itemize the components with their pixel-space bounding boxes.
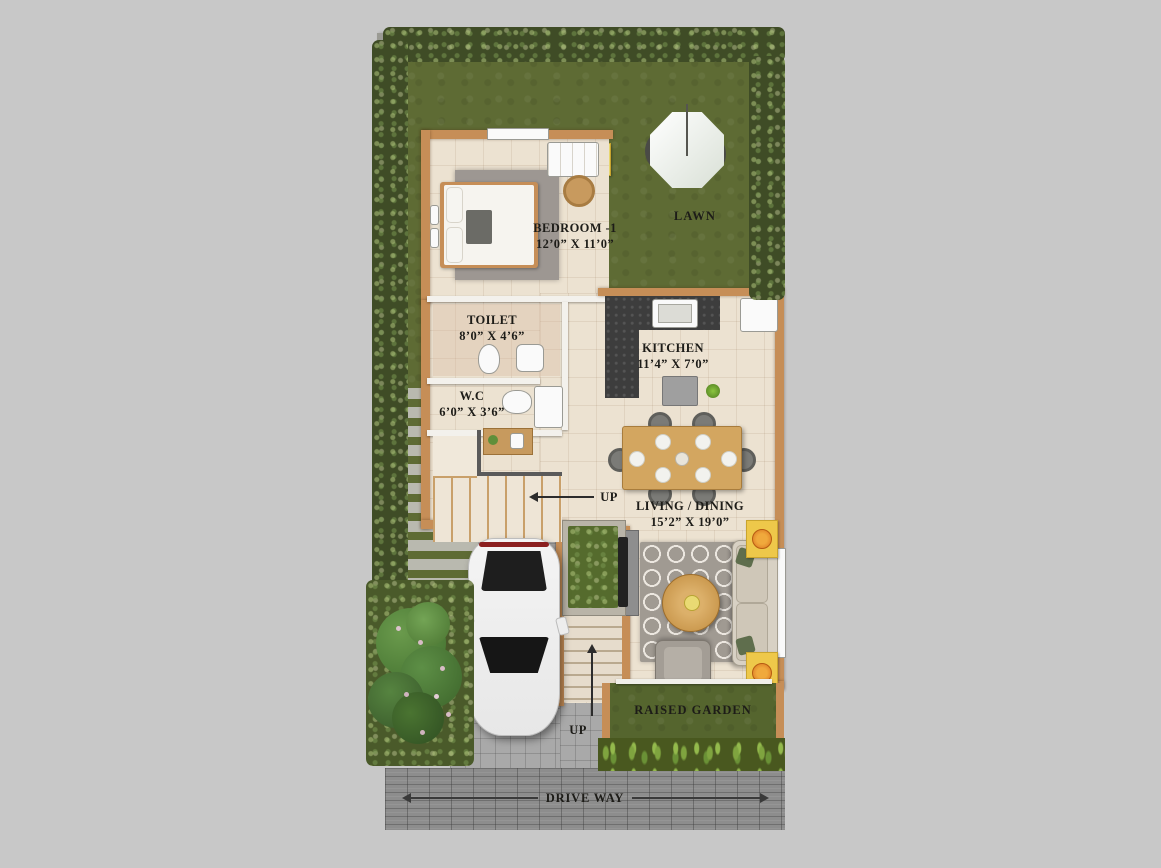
toilet-washbasin xyxy=(516,344,544,372)
wardrobe xyxy=(547,142,599,177)
hedge-top xyxy=(383,27,785,62)
plate xyxy=(655,467,671,483)
table-decor xyxy=(684,595,700,611)
wc-label: W.C 6’0” X 3’6” xyxy=(422,388,522,420)
bed-pillow xyxy=(446,187,463,223)
partition-toilet-wc xyxy=(427,378,540,384)
entry-up-arrow-icon xyxy=(587,644,597,653)
partition-bedroom-toilet xyxy=(427,296,609,302)
plate xyxy=(695,467,711,483)
raised-garden-label: RAISED GARDEN xyxy=(618,702,768,718)
lawn-label: LAWN xyxy=(645,208,745,224)
plate xyxy=(629,451,645,467)
entry-up-text: UP xyxy=(565,722,591,738)
study-desk xyxy=(483,428,533,455)
sink-basin xyxy=(658,304,692,323)
entry-up-arrow-line xyxy=(591,652,593,716)
desk-papers xyxy=(510,433,524,449)
driveway-arrow-line xyxy=(632,797,760,799)
entry-up-label: UP xyxy=(565,722,591,738)
toilet-label: TOILET 8’0” X 4’6” xyxy=(442,312,542,344)
dining-table xyxy=(622,426,742,490)
car-rear-window xyxy=(481,551,547,591)
kitchen-plant xyxy=(706,384,720,398)
refrigerator xyxy=(662,376,698,406)
bedroom-label: BEDROOM -1 12’0” X 11’0” xyxy=(515,220,635,252)
car-taillight xyxy=(479,542,549,547)
fern-border xyxy=(598,738,785,771)
kitchen-label: KITCHEN 11’4” X 7’0” xyxy=(618,340,728,372)
bedroom-name: BEDROOM -1 xyxy=(515,220,635,236)
up-arrow-icon xyxy=(529,492,538,502)
toilet-commode xyxy=(478,344,500,374)
tree-canopy xyxy=(392,692,444,744)
wc-name: W.C xyxy=(422,388,522,404)
plate xyxy=(655,434,671,450)
wall-art-frames xyxy=(430,205,439,225)
car xyxy=(468,538,560,736)
tree-planter xyxy=(366,580,474,766)
entry-planter xyxy=(562,520,626,616)
wc-dims: 6’0” X 3’6” xyxy=(422,404,522,420)
desk-plant xyxy=(488,435,498,445)
driveway-arrow-icon xyxy=(402,793,411,803)
tv-screen xyxy=(618,537,628,607)
toilet-dims: 8’0” X 4’6” xyxy=(442,328,542,344)
planter-plants xyxy=(568,526,618,608)
kitchen-dims: 11’4” X 7’0” xyxy=(618,356,728,372)
utility-counter xyxy=(740,298,778,332)
stair-railing xyxy=(477,430,481,476)
stair-railing xyxy=(477,472,562,476)
toilet-name: TOILET xyxy=(442,312,542,328)
plate xyxy=(695,434,711,450)
washing-machine xyxy=(534,386,563,428)
bedroom-dims: 12’0” X 11’0” xyxy=(515,236,635,252)
bed-throw-blanket xyxy=(466,210,492,244)
driveway-text: DRIVE WAY xyxy=(540,790,630,806)
plate xyxy=(721,451,737,467)
table-centerpiece xyxy=(675,452,689,466)
bedroom-stool xyxy=(563,175,595,207)
floor-plan-canvas: LAWN BEDROOM -1 12’0” X 11’0” TOILET 8’0… xyxy=(0,0,1161,868)
living-dims: 15’2” X 19’0” xyxy=(625,514,755,530)
driveway-arrow-line xyxy=(410,797,538,799)
stairs-treads xyxy=(433,476,562,542)
living-label: LIVING / DINING 15’2” X 19’0” xyxy=(625,498,755,530)
driveway-arrow-icon xyxy=(760,793,769,803)
bedroom-window xyxy=(487,128,549,140)
lawn-label-text: LAWN xyxy=(645,208,745,224)
decor-bowl-icon xyxy=(752,529,772,549)
car-windshield xyxy=(479,637,549,673)
sofa xyxy=(732,540,778,666)
coffee-table xyxy=(662,574,720,632)
hedge-right xyxy=(749,56,785,300)
up-arrow-line xyxy=(538,496,594,498)
kitchen-name: KITCHEN xyxy=(618,340,728,356)
tree-flowers xyxy=(396,626,401,631)
umbrella-pole xyxy=(686,104,688,156)
bed-pillow xyxy=(446,227,463,263)
kitchen-sink xyxy=(652,299,698,328)
stairs-up-text: UP xyxy=(596,489,622,505)
living-name: LIVING / DINING xyxy=(625,498,755,514)
hedge-left xyxy=(372,40,408,592)
bedroom-wall-left xyxy=(421,130,430,306)
wall-art-frames xyxy=(430,228,439,248)
tree-canopy xyxy=(406,602,450,646)
stairs-up-label: UP xyxy=(596,489,622,505)
raised-garden-text: RAISED GARDEN xyxy=(618,702,768,718)
driveway-label: DRIVE WAY xyxy=(540,790,630,806)
stairs-upper-landing xyxy=(433,436,477,478)
garden-railing xyxy=(616,679,772,684)
armchair-seat xyxy=(664,647,702,681)
